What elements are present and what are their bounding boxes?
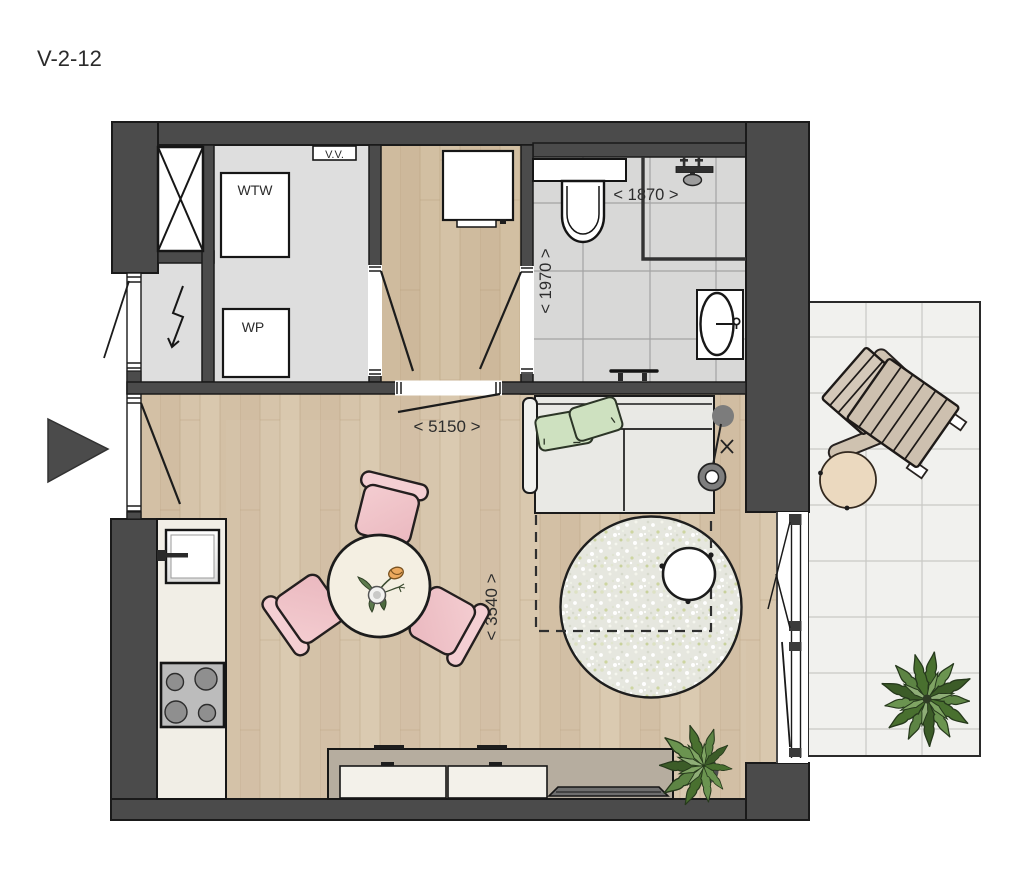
svg-text:< 1970 >: < 1970 > xyxy=(537,248,555,313)
svg-text:WTW: WTW xyxy=(238,182,274,198)
svg-text:V.V.: V.V. xyxy=(325,149,344,161)
svg-text:< 5150 >: < 5150 > xyxy=(413,417,480,436)
svg-text:WP: WP xyxy=(242,319,265,335)
svg-text:V-2-12: V-2-12 xyxy=(37,46,102,71)
svg-text:< 1870 >: < 1870 > xyxy=(613,186,678,204)
